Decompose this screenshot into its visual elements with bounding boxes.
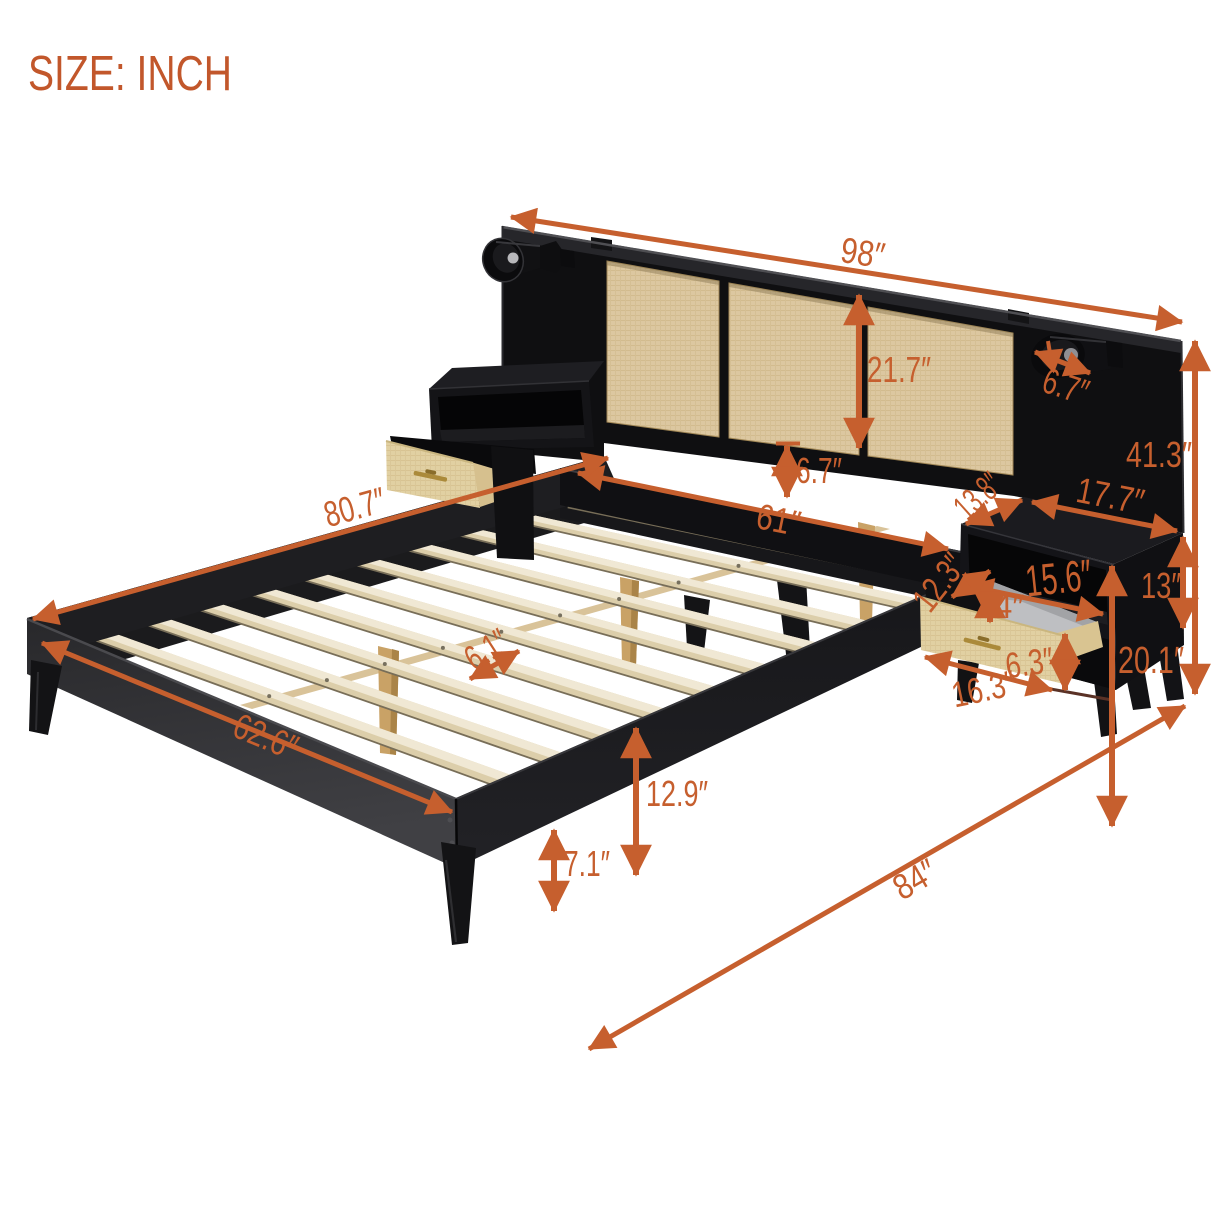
svg-text:61″: 61″ bbox=[753, 495, 805, 544]
svg-text:SIZE: INCH: SIZE: INCH bbox=[28, 47, 232, 101]
svg-text:15.6″: 15.6″ bbox=[1023, 551, 1094, 607]
svg-text:6.7″: 6.7″ bbox=[796, 450, 842, 491]
svg-text:98″: 98″ bbox=[838, 229, 888, 276]
svg-text:12.9″: 12.9″ bbox=[646, 773, 708, 814]
svg-text:41.3″: 41.3″ bbox=[1126, 434, 1192, 475]
svg-text:20.1″: 20.1″ bbox=[1118, 640, 1184, 682]
svg-text:13″: 13″ bbox=[1141, 565, 1181, 606]
svg-text:4″: 4″ bbox=[994, 588, 1024, 626]
svg-text:7.1″: 7.1″ bbox=[564, 843, 610, 884]
svg-text:21.7″: 21.7″ bbox=[867, 349, 931, 390]
